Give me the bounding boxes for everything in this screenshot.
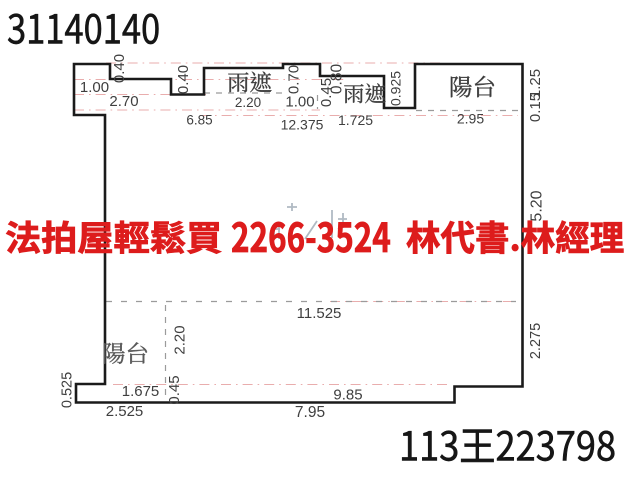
- svg-text:5.20: 5.20: [529, 190, 546, 221]
- svg-text:11.525: 11.525: [297, 305, 342, 322]
- svg-text:0.70: 0.70: [286, 65, 303, 94]
- svg-text:2.20: 2.20: [235, 95, 261, 110]
- svg-text:1.675: 1.675: [122, 383, 160, 400]
- svg-text:2.525: 2.525: [106, 403, 144, 420]
- svg-text:0.40: 0.40: [175, 65, 192, 94]
- svg-text:2.20: 2.20: [172, 325, 189, 354]
- svg-text:7.95: 7.95: [295, 404, 325, 421]
- svg-text:0.80: 0.80: [329, 64, 346, 95]
- svg-text:2.95: 2.95: [457, 111, 484, 127]
- svg-text:0.15: 0.15: [527, 93, 544, 122]
- svg-text:2.275: 2.275: [528, 323, 544, 359]
- svg-text:0.525: 0.525: [60, 372, 76, 408]
- svg-text:0.45: 0.45: [166, 375, 183, 404]
- svg-text:1.00: 1.00: [80, 79, 109, 96]
- svg-text:0.925: 0.925: [388, 71, 404, 106]
- svg-text:0.40: 0.40: [111, 54, 128, 83]
- svg-text:6.85: 6.85: [186, 113, 212, 128]
- svg-text:12.375: 12.375: [281, 117, 324, 133]
- svg-text:9.85: 9.85: [333, 387, 362, 404]
- svg-text:1.00: 1.00: [285, 94, 314, 111]
- svg-text:2.70: 2.70: [109, 93, 138, 110]
- svg-text:1.725: 1.725: [338, 112, 373, 128]
